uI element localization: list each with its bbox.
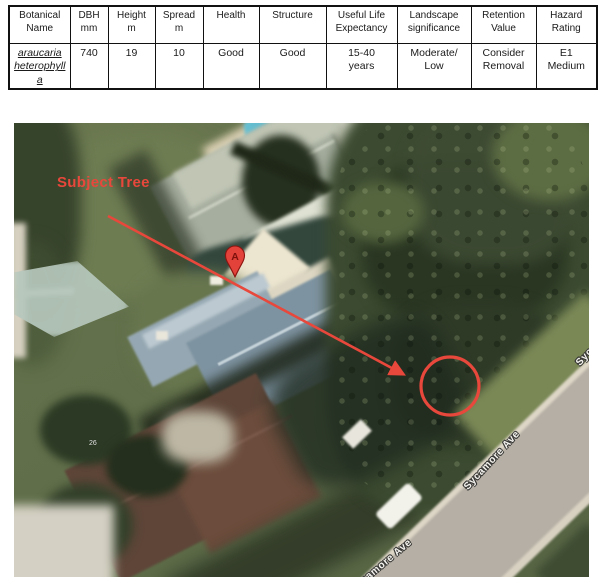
cell-botanical-name: araucaria heterophyll a — [9, 44, 70, 90]
tree-assessment-table: Botanical Name DBH mm Height m Spread m … — [8, 5, 598, 90]
cell-structure: Good — [259, 44, 326, 90]
col-header-hazard: Hazard Rating — [536, 6, 597, 44]
cell-useful-life: 15-40 years — [326, 44, 397, 90]
cell-retention: Consider Removal — [471, 44, 536, 90]
cell-hazard: E1 Medium — [536, 44, 597, 90]
assessment-table-wrapper: Botanical Name DBH mm Height m Spread m … — [8, 5, 596, 90]
col-header-structure: Structure — [259, 6, 326, 44]
col-header-height: Height m — [108, 6, 155, 44]
cell-height: 19 — [108, 44, 155, 90]
aerial-map-image: Subject Tree Sycamore Ave Sycamore Ave S… — [14, 123, 589, 577]
col-header-useful-life: Useful Life Expectancy — [326, 6, 397, 44]
map-pin-letter: A — [231, 251, 239, 263]
col-header-health: Health — [203, 6, 259, 44]
cell-landscape: Moderate/ Low — [397, 44, 471, 90]
cell-spread: 10 — [155, 44, 203, 90]
table-data-row: araucaria heterophyll a 740 19 10 Good G… — [9, 44, 597, 90]
col-header-spread: Spread m — [155, 6, 203, 44]
col-header-landscape: Landscape significance — [397, 6, 471, 44]
col-header-botanical-name: Botanical Name — [9, 6, 70, 44]
annotation-arrow — [108, 216, 403, 374]
table-header-row: Botanical Name DBH mm Height m Spread m … — [9, 6, 597, 44]
cell-dbh: 740 — [70, 44, 108, 90]
col-header-retention: Retention Value — [471, 6, 536, 44]
annotation-overlay: A — [14, 123, 589, 577]
cell-health: Good — [203, 44, 259, 90]
col-header-dbh: DBH mm — [70, 6, 108, 44]
subject-tree-highlight-circle — [421, 357, 479, 415]
